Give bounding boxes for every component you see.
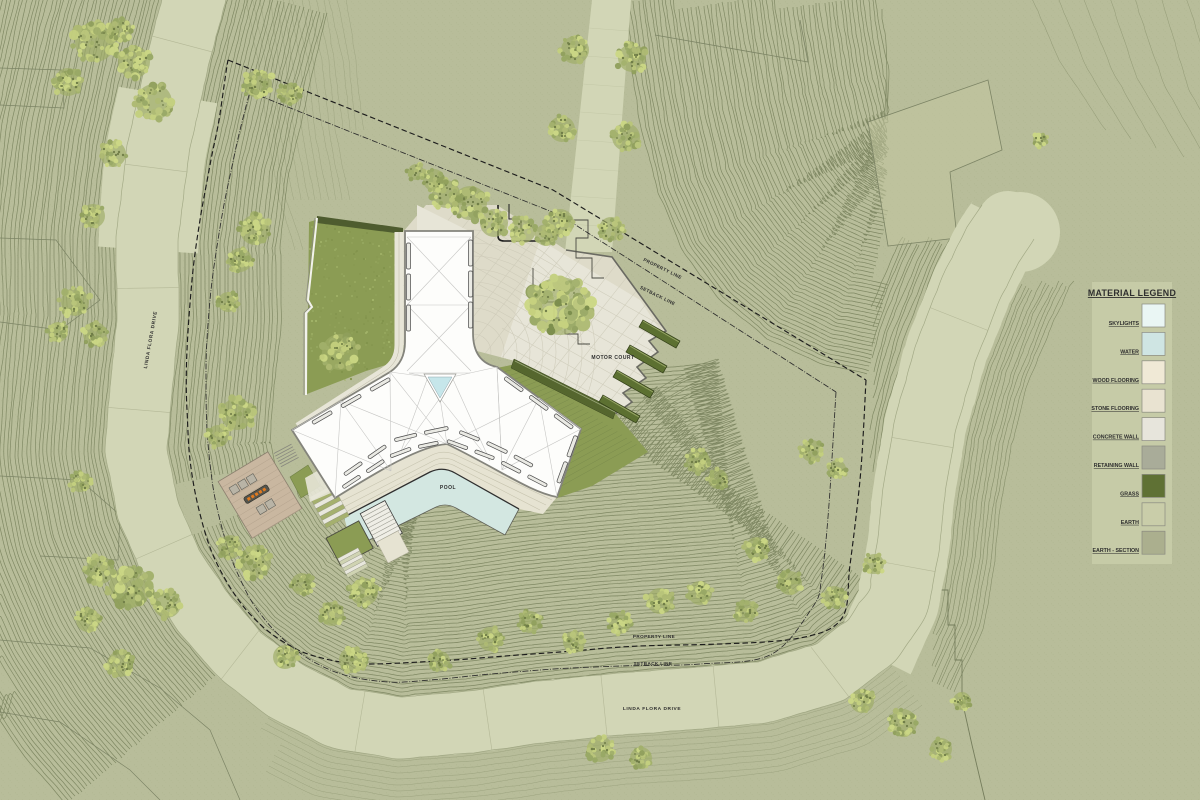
svg-text:EARTH - SECTION: EARTH - SECTION: [1093, 548, 1140, 554]
svg-text:RETAINING WALL: RETAINING WALL: [1094, 463, 1140, 469]
svg-text:WATER: WATER: [1120, 349, 1139, 355]
svg-text:EARTH: EARTH: [1121, 520, 1139, 526]
svg-text:POOL: POOL: [440, 485, 456, 491]
svg-text:GRASS: GRASS: [1120, 491, 1139, 497]
svg-text:PROPERTY LINE: PROPERTY LINE: [633, 634, 675, 639]
svg-text:MATERIAL LEGEND: MATERIAL LEGEND: [1088, 288, 1176, 298]
svg-text:MOTOR COURT: MOTOR COURT: [591, 355, 634, 361]
svg-text:WOOD FLOORING: WOOD FLOORING: [1093, 378, 1140, 384]
svg-text:LINDA FLORA DRIVE: LINDA FLORA DRIVE: [623, 706, 682, 712]
svg-text:SKYLIGHTS: SKYLIGHTS: [1109, 321, 1140, 327]
svg-text:STONE FLOORING: STONE FLOORING: [1091, 406, 1139, 412]
svg-text:CONCRETE WALL: CONCRETE WALL: [1093, 435, 1140, 441]
svg-text:SETBACK LINE: SETBACK LINE: [634, 661, 673, 666]
